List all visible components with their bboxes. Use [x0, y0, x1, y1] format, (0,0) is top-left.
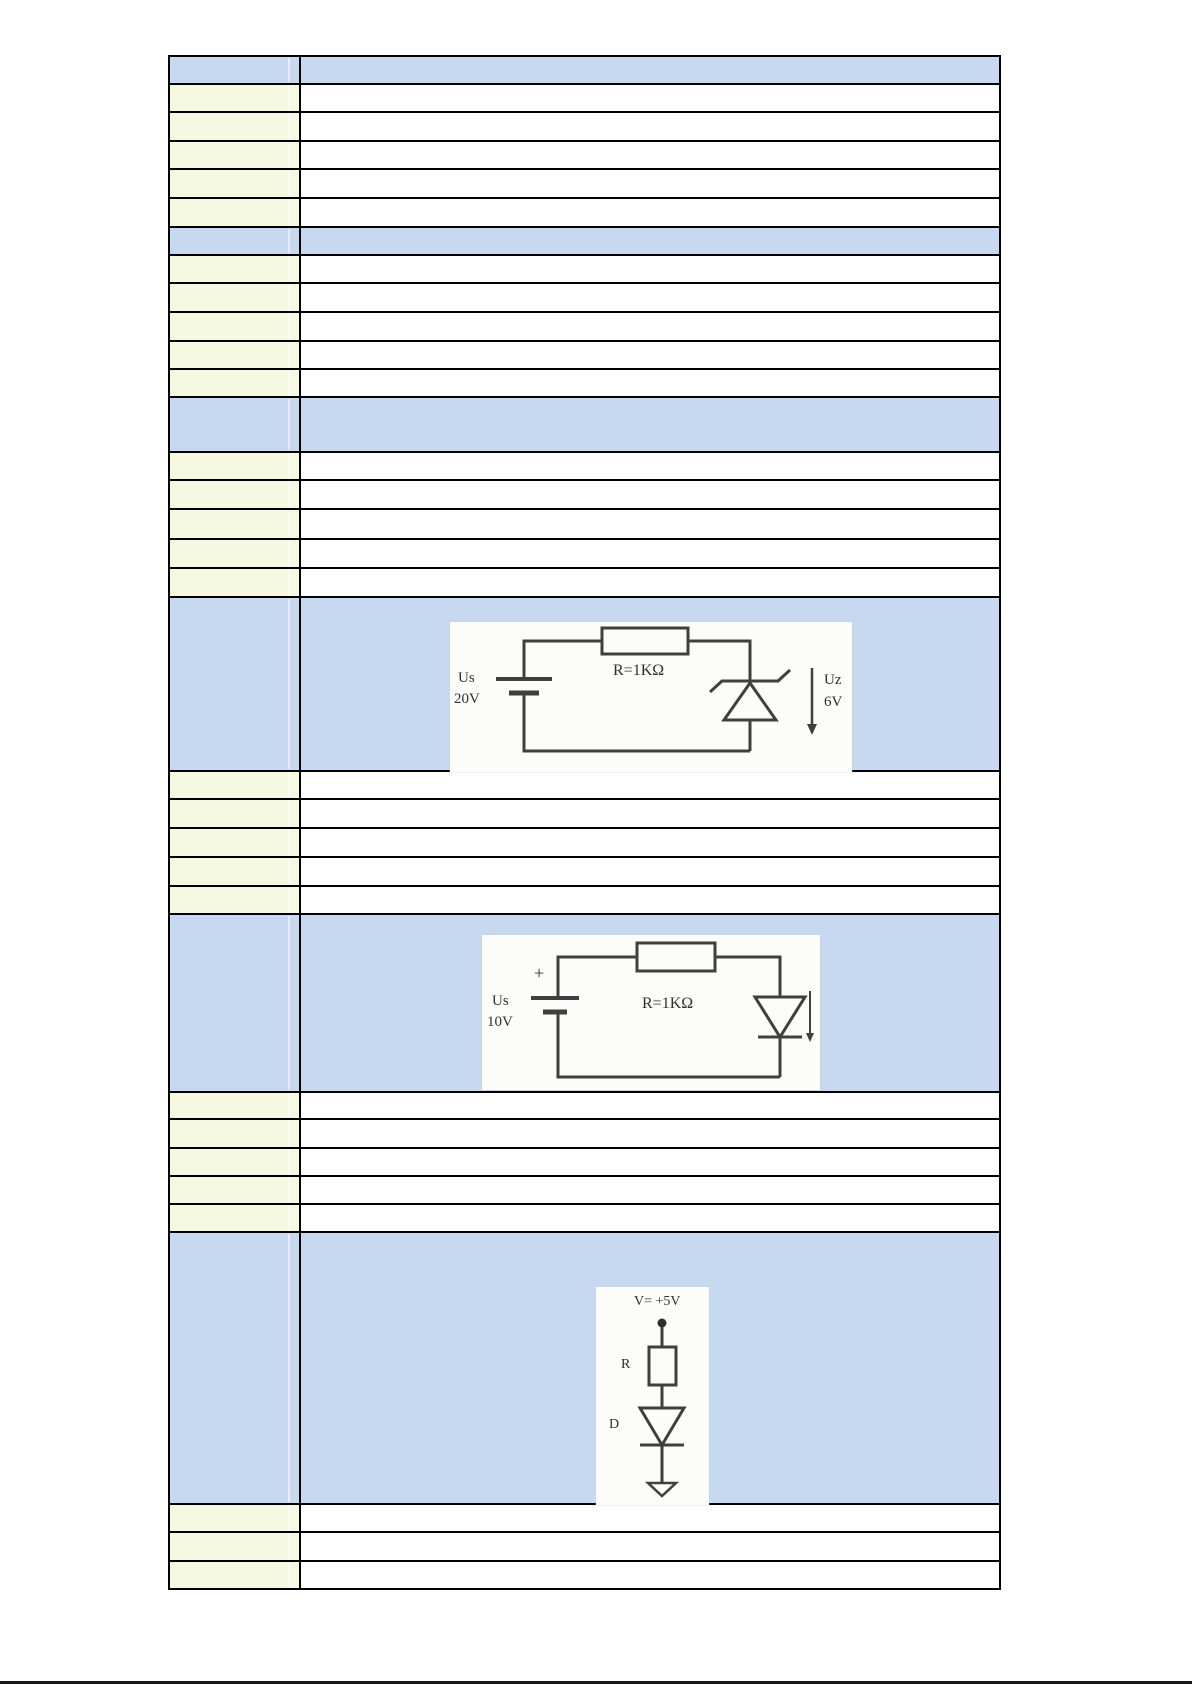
document-table [168, 55, 1001, 1590]
row-content-cell [301, 370, 999, 396]
output-voltage: 6V [824, 694, 843, 710]
table-row [170, 858, 999, 887]
row-label-cell [170, 1233, 301, 1503]
source-voltage: 10V [487, 1014, 513, 1030]
wire [715, 957, 780, 997]
row-label-cell [170, 800, 301, 827]
row-content-cell [301, 1093, 999, 1118]
table-row [170, 313, 999, 342]
row-label-cell [170, 228, 301, 254]
row-content-cell [301, 540, 999, 567]
row-label-cell [170, 1149, 301, 1175]
resistor-label: R=1KΩ [642, 995, 693, 1012]
output-label: Uz [824, 672, 842, 688]
row-content-cell [301, 1177, 999, 1203]
row-label-cell [170, 1533, 301, 1560]
source-label: Us [492, 993, 509, 1009]
table-row [170, 284, 999, 313]
row-label-cell [170, 85, 301, 111]
row-content-cell [301, 313, 999, 340]
diode-label: D [609, 1417, 619, 1432]
table-row [170, 481, 999, 510]
row-label-cell [170, 887, 301, 913]
table-row [170, 772, 999, 800]
node-dot [658, 1319, 667, 1328]
table-row [170, 800, 999, 829]
row-label-cell [170, 1093, 301, 1118]
row-label-cell [170, 199, 301, 226]
row-label-cell [170, 1177, 301, 1203]
table-row [170, 1562, 999, 1590]
row-label-cell [170, 829, 301, 856]
row-content-cell [301, 342, 999, 368]
resistor-symbol [649, 1347, 676, 1385]
row-content-cell [301, 858, 999, 885]
source-label: Us [458, 670, 475, 686]
row-content-cell [301, 398, 999, 451]
page-bottom-rule [0, 1681, 1192, 1684]
supply-label: V= +5V [634, 1294, 681, 1309]
resistor-label: R=1KΩ [613, 662, 664, 679]
pullup-circuit-diagram: V= +5V R D [596, 1287, 709, 1505]
row-label-cell [170, 453, 301, 479]
table-row [170, 342, 999, 370]
wire [524, 641, 602, 679]
zener-circuit-diagram: Us 20V R=1KΩ Uz 6V [450, 622, 852, 772]
table-row [170, 142, 999, 170]
wire [688, 641, 750, 681]
row-content-cell [301, 199, 999, 226]
table-row [170, 256, 999, 284]
row-content-cell [301, 1120, 999, 1147]
row-label-cell [170, 915, 301, 1091]
row-content-cell [301, 1533, 999, 1560]
table-row [170, 1149, 999, 1177]
row-content-cell [301, 228, 999, 254]
table-row [170, 85, 999, 113]
resistor-symbol [637, 943, 715, 971]
row-label-cell [170, 481, 301, 508]
table-header-row [170, 57, 999, 85]
row-label-cell [170, 772, 301, 798]
zener-anode-triangle [724, 683, 776, 720]
document-page: Us 20V R=1KΩ Uz 6V [0, 0, 1192, 1685]
table-row [170, 1533, 999, 1562]
row-content-cell [301, 1562, 999, 1588]
table-row [170, 829, 999, 858]
row-label-cell [170, 1120, 301, 1147]
table-row [170, 453, 999, 481]
ground-symbol [648, 1483, 676, 1496]
figure-series-diode-circuit: + Us 10V R=1KΩ [482, 935, 820, 1090]
wire [558, 1012, 780, 1077]
resistor-symbol [602, 628, 688, 654]
table-row [170, 170, 999, 199]
row-content-cell [301, 113, 999, 140]
table-row [170, 370, 999, 398]
row-content-cell [301, 1149, 999, 1175]
table-row [170, 540, 999, 569]
table-row [170, 569, 999, 598]
row-label-cell [170, 284, 301, 311]
table-row [170, 1177, 999, 1205]
row-content-cell [301, 453, 999, 479]
section-row-with-figure [170, 1233, 999, 1505]
table-row [170, 199, 999, 228]
row-content-cell [301, 142, 999, 168]
row-label-cell [170, 142, 301, 168]
row-content-cell [301, 510, 999, 538]
row-label-cell [170, 313, 301, 340]
polarity-plus: + [534, 963, 544, 983]
table-row [170, 1120, 999, 1149]
row-content-cell [301, 772, 999, 798]
row-content-cell [301, 284, 999, 311]
row-content-cell [301, 170, 999, 197]
table-row [170, 113, 999, 142]
arrowhead [806, 1033, 814, 1042]
row-content-cell [301, 829, 999, 856]
table-row [170, 1205, 999, 1233]
row-content-cell [301, 256, 999, 282]
row-content-cell [301, 569, 999, 596]
diode-circuit-diagram: + Us 10V R=1KΩ [482, 935, 820, 1090]
row-label-cell [170, 1562, 301, 1588]
figure-zener-regulator-circuit: Us 20V R=1KΩ Uz 6V [450, 622, 852, 772]
row-content-cell [301, 481, 999, 508]
row-label-cell [170, 569, 301, 596]
wire [524, 693, 750, 751]
row-content-cell [301, 887, 999, 913]
source-voltage: 20V [454, 691, 480, 707]
row-label-cell [170, 540, 301, 567]
row-label-cell [170, 1205, 301, 1231]
row-content-cell [301, 85, 999, 111]
row-label-cell [170, 510, 301, 538]
table-row [170, 510, 999, 540]
row-label-cell [170, 256, 301, 282]
arrowhead [807, 724, 817, 735]
table-row [170, 1093, 999, 1120]
diode-triangle [755, 997, 805, 1037]
row-label-cell [170, 57, 301, 83]
table-row [170, 1505, 999, 1533]
row-label-cell [170, 398, 301, 451]
row-label-cell [170, 370, 301, 396]
row-label-cell [170, 1505, 301, 1531]
table-row [170, 887, 999, 915]
diode-triangle [640, 1408, 684, 1445]
resistor-label: R [621, 1357, 631, 1372]
wire [558, 957, 637, 998]
row-label-cell [170, 598, 301, 770]
section-row [170, 228, 999, 256]
row-content-cell [301, 800, 999, 827]
row-label-cell [170, 170, 301, 197]
row-content-cell [301, 1205, 999, 1231]
row-label-cell [170, 113, 301, 140]
row-label-cell [170, 342, 301, 368]
section-row [170, 398, 999, 453]
row-content-cell [301, 1505, 999, 1531]
figure-pullup-diode-circuit: V= +5V R D [596, 1287, 709, 1505]
row-label-cell [170, 858, 301, 885]
row-content-cell [301, 57, 999, 83]
